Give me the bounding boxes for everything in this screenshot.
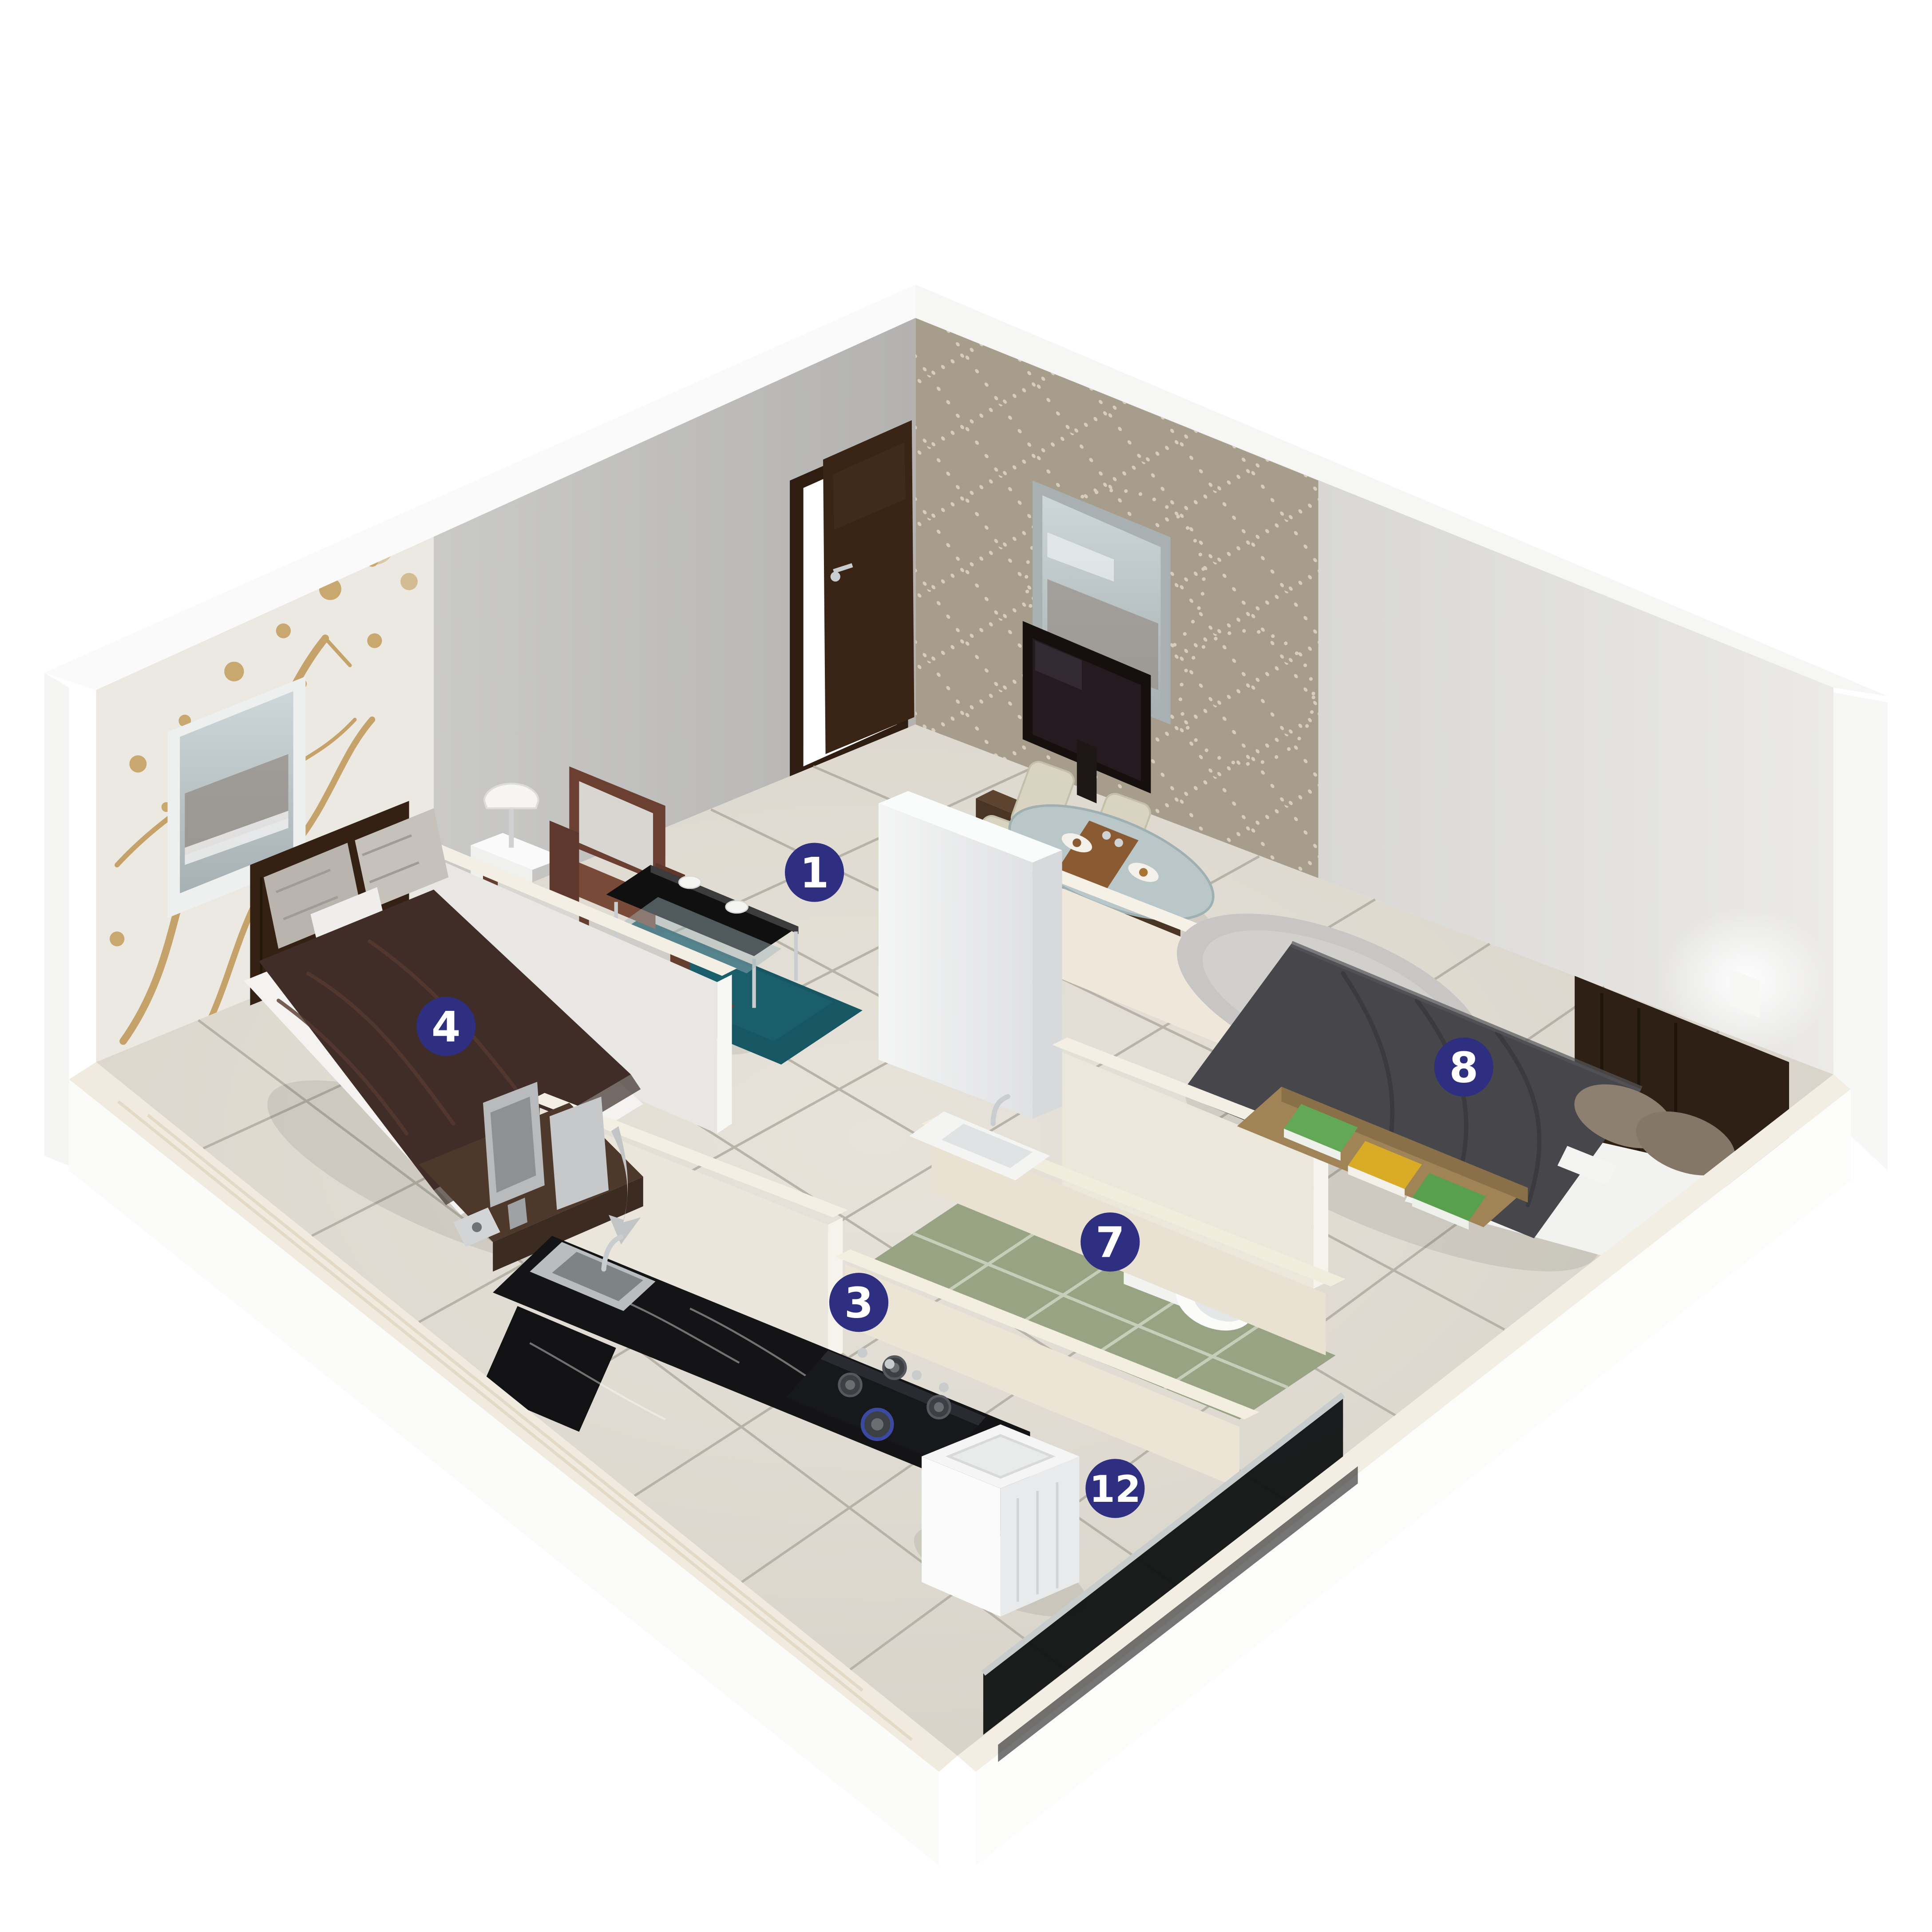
svg-text:8: 8 xyxy=(1449,1044,1478,1093)
floorplan-render: 1 3 4 7 8 12 xyxy=(0,0,1932,1932)
tv-stand xyxy=(1077,739,1097,803)
svg-text:3: 3 xyxy=(844,1279,874,1328)
marker-bedroom-right: 8 xyxy=(1434,1037,1493,1097)
marker-kitchen: 3 xyxy=(829,1273,888,1332)
shaker xyxy=(1102,831,1111,839)
door-handle xyxy=(831,572,840,582)
floorplan-svg: 1 3 4 7 8 12 xyxy=(0,0,1932,1932)
svg-text:12: 12 xyxy=(1089,1468,1141,1511)
marker-utility: 12 xyxy=(1085,1459,1144,1518)
desk-panel-decor xyxy=(550,1097,609,1210)
utility-balcony xyxy=(922,1424,1079,1616)
shaker xyxy=(1114,839,1123,847)
svg-text:4: 4 xyxy=(432,1003,461,1052)
entry-door xyxy=(790,420,914,780)
svg-text:7: 7 xyxy=(1096,1219,1125,1267)
marker-bedroom-left: 4 xyxy=(416,997,475,1056)
washing-machine xyxy=(922,1424,1079,1616)
wardrobe-column xyxy=(879,791,1062,1119)
marker-bathroom: 7 xyxy=(1081,1212,1140,1271)
marker-living-room: 1 xyxy=(785,843,844,902)
svg-text:1: 1 xyxy=(800,849,829,898)
